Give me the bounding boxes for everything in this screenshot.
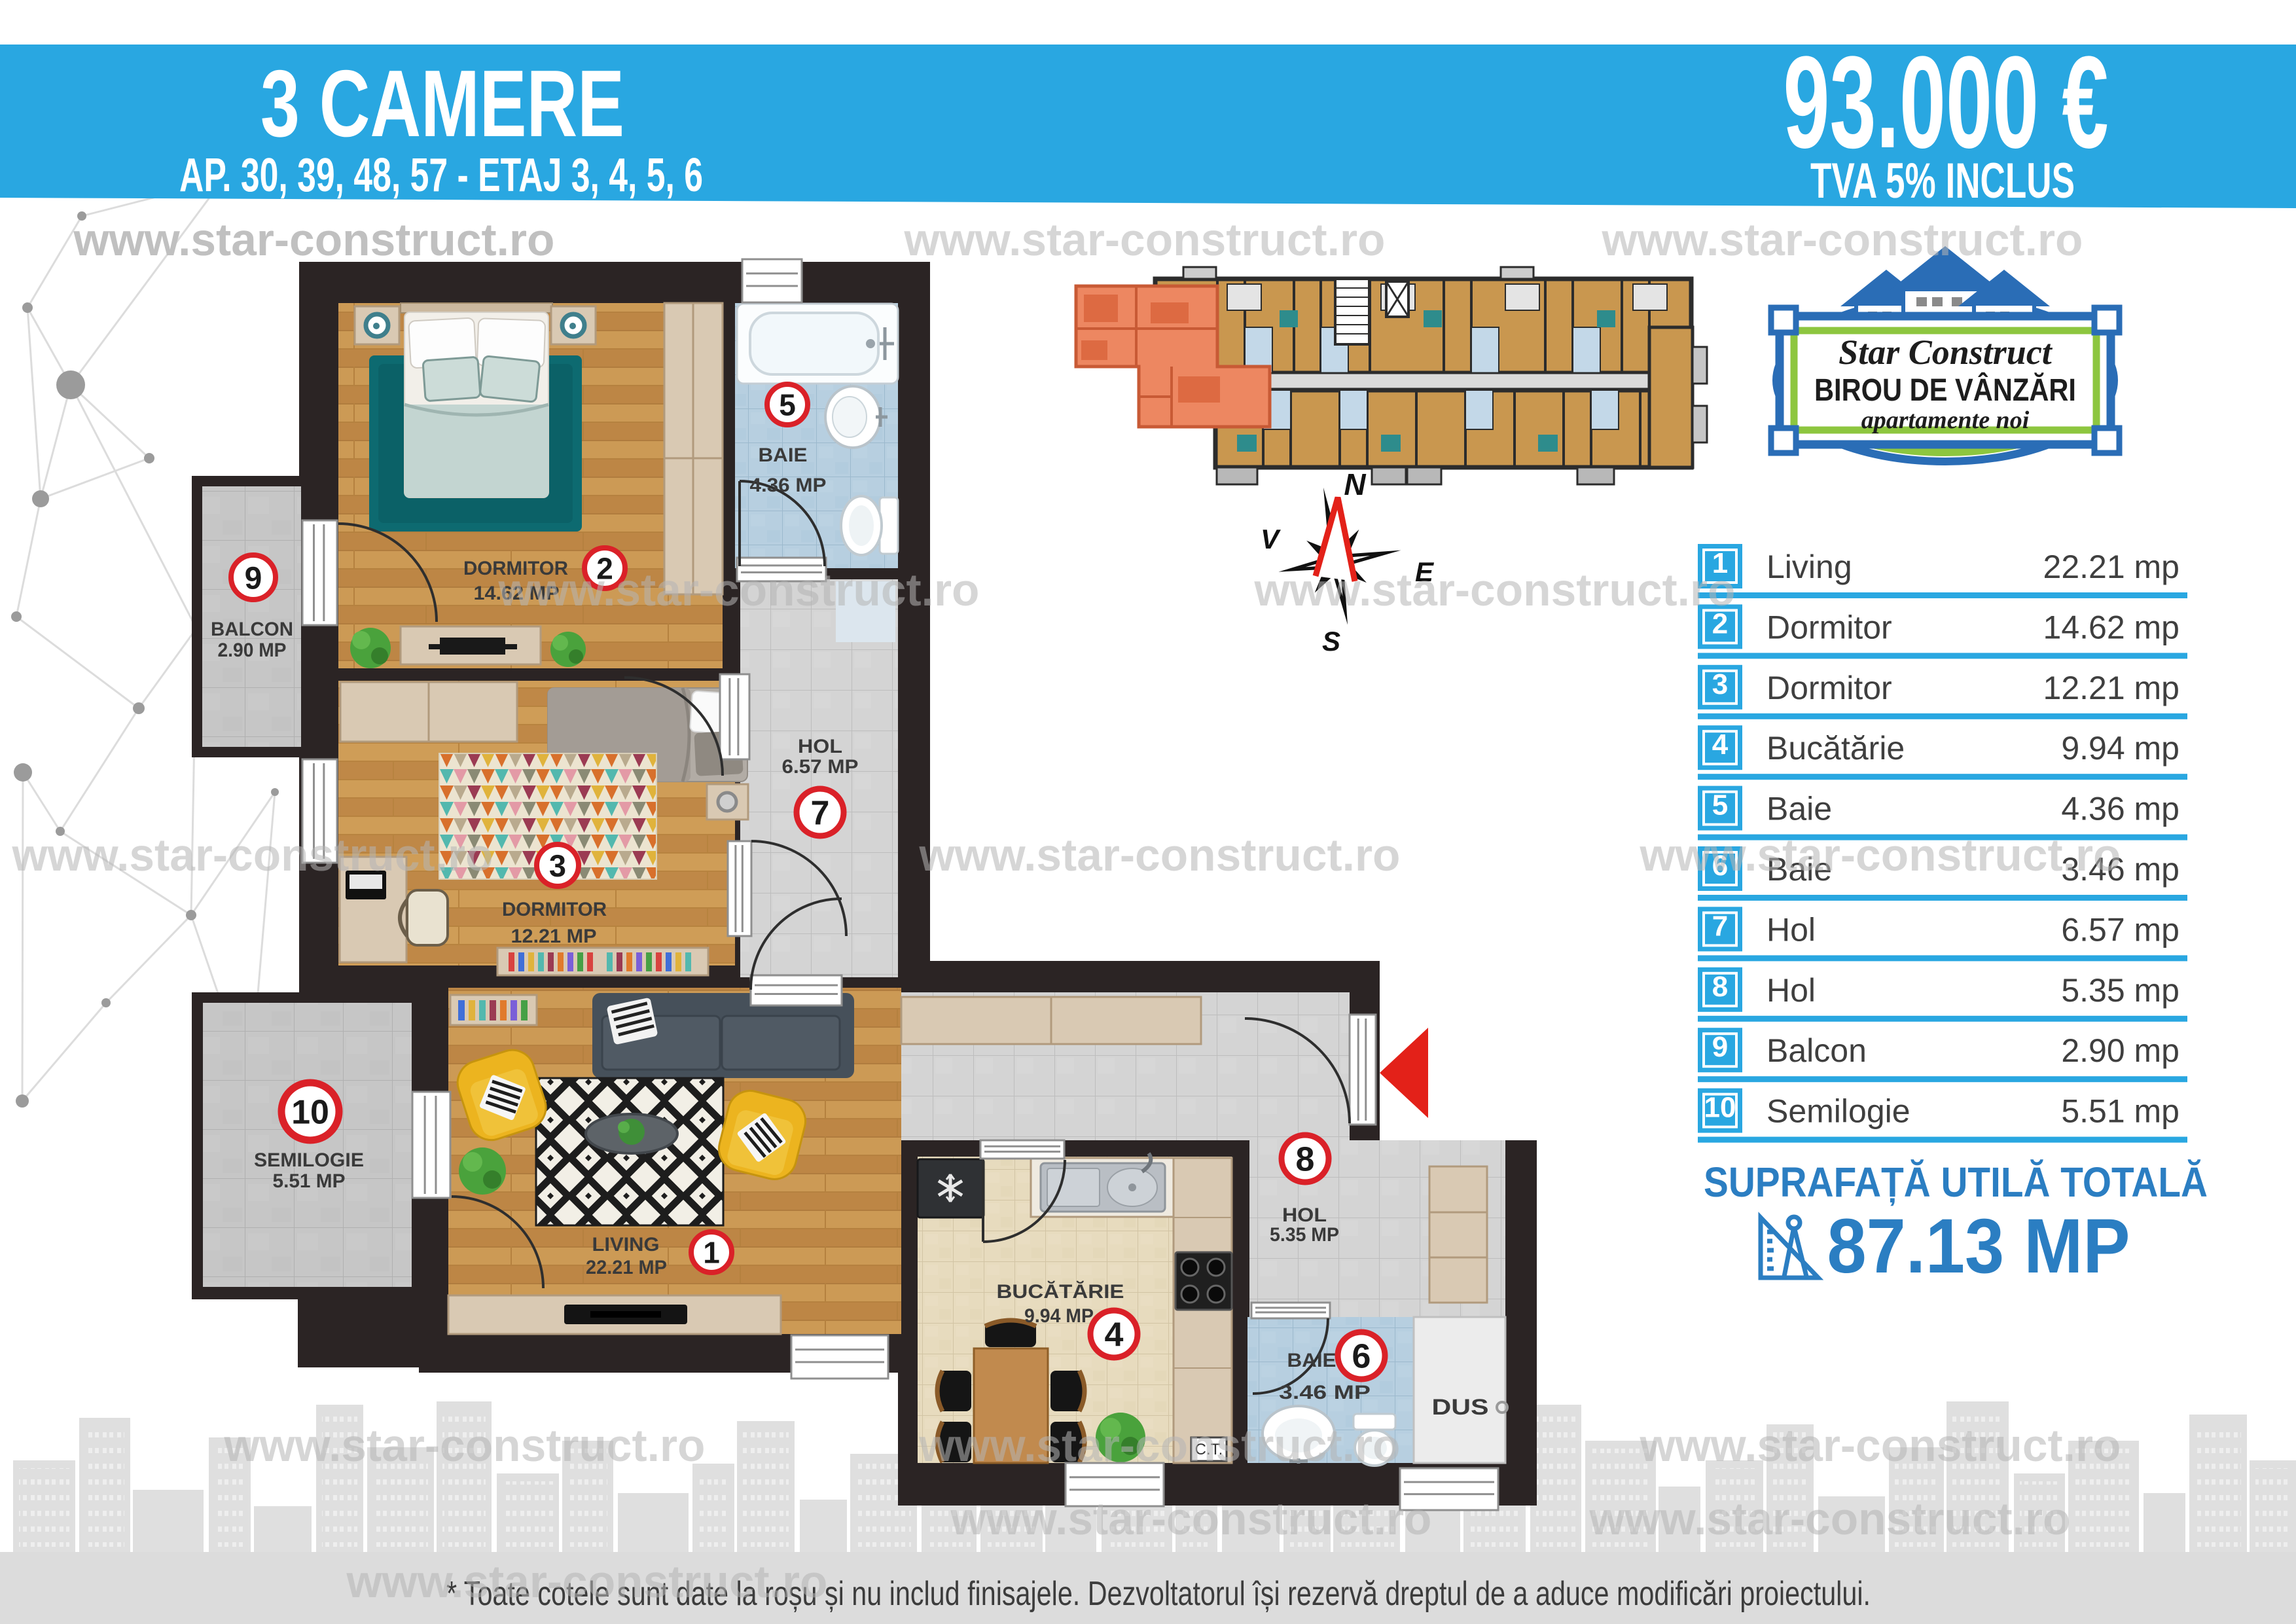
svg-text:Living: Living bbox=[1767, 549, 1852, 585]
svg-text:V: V bbox=[1261, 524, 1281, 554]
svg-text:SUPRAFAȚĂ UTILĂ TOTALĂ: SUPRAFAȚĂ UTILĂ TOTALĂ bbox=[1704, 1159, 2208, 1206]
svg-text:TVA 5% INCLUS: TVA 5% INCLUS bbox=[1810, 153, 2075, 209]
svg-text:Hol: Hol bbox=[1767, 911, 1816, 948]
svg-text:BAIE: BAIE bbox=[759, 444, 808, 466]
svg-text:S: S bbox=[1322, 626, 1340, 657]
svg-text:8: 8 bbox=[1712, 971, 1728, 1003]
svg-text:5.35 mp: 5.35 mp bbox=[2061, 972, 2179, 1009]
svg-text:Balcon: Balcon bbox=[1767, 1032, 1867, 1069]
svg-text:22.21 mp: 22.21 mp bbox=[2043, 549, 2179, 585]
svg-text:www.star-construct.ro: www.star-construct.ro bbox=[1254, 564, 1736, 615]
svg-text:Semilogie: Semilogie bbox=[1767, 1093, 1910, 1130]
svg-text:9.94 mp: 9.94 mp bbox=[2061, 730, 2179, 767]
svg-text:AP. 30, 39, 48, 57 - ETAJ 3,: AP. 30, 39, 48, 57 - ETAJ 3, 4, 5, 6 bbox=[179, 149, 703, 202]
svg-text:BALCON: BALCON bbox=[211, 619, 293, 640]
svg-text:www.star-construct.ro: www.star-construct.ro bbox=[1640, 1420, 2121, 1471]
svg-text:Star Construct: Star Construct bbox=[1839, 333, 2053, 372]
svg-text:10: 10 bbox=[291, 1094, 329, 1132]
svg-text:5.51 MP: 5.51 MP bbox=[273, 1170, 346, 1192]
svg-text:www.star-construct.ro: www.star-construct.ro bbox=[919, 829, 1401, 880]
svg-text:N: N bbox=[1344, 467, 1366, 501]
svg-text:6.57 MP: 6.57 MP bbox=[782, 756, 859, 778]
svg-text:Hol: Hol bbox=[1767, 972, 1816, 1009]
svg-text:6: 6 bbox=[1352, 1338, 1371, 1376]
svg-text:12.21 mp: 12.21 mp bbox=[2043, 670, 2179, 706]
svg-text:8: 8 bbox=[1296, 1141, 1315, 1179]
svg-text:1: 1 bbox=[703, 1236, 720, 1270]
svg-text:2.90 MP: 2.90 MP bbox=[218, 640, 287, 661]
svg-text:BUCĂTĂRIE: BUCĂTĂRIE bbox=[997, 1280, 1124, 1303]
svg-text:7: 7 bbox=[811, 795, 830, 833]
svg-text:HOL: HOL bbox=[1282, 1204, 1327, 1226]
svg-text:9: 9 bbox=[245, 561, 262, 596]
svg-text:www.star-construct.ro: www.star-construct.ro bbox=[12, 829, 493, 880]
svg-text:apartamente noi: apartamente noi bbox=[1861, 406, 2030, 434]
svg-text:22.21 MP: 22.21 MP bbox=[586, 1257, 667, 1278]
svg-text:www.star-construct.ro: www.star-construct.ro bbox=[73, 214, 555, 265]
svg-text:3: 3 bbox=[549, 848, 566, 883]
svg-text:10: 10 bbox=[1704, 1092, 1736, 1124]
svg-text:www.star-construct.ro: www.star-construct.ro bbox=[346, 1556, 828, 1607]
svg-text:BIROU DE VÂNZĂRI: BIROU DE VÂNZĂRI bbox=[1814, 372, 2076, 408]
svg-text:Dormitor: Dormitor bbox=[1767, 609, 1892, 645]
svg-text:DORMITOR: DORMITOR bbox=[502, 899, 607, 920]
svg-text:3.46 MP: 3.46 MP bbox=[1279, 1382, 1371, 1403]
svg-text:4.36 mp: 4.36 mp bbox=[2061, 791, 2179, 827]
svg-text:4: 4 bbox=[1712, 729, 1729, 761]
svg-text:3: 3 bbox=[1712, 668, 1728, 700]
svg-text:www.star-construct.ro: www.star-construct.ro bbox=[904, 214, 1386, 265]
svg-text:5: 5 bbox=[779, 388, 796, 422]
svg-text:14.62 mp: 14.62 mp bbox=[2043, 609, 2179, 645]
svg-text:www.star-construct.ro: www.star-construct.ro bbox=[1640, 829, 2121, 880]
svg-text:HOL: HOL bbox=[798, 736, 842, 757]
svg-text:Dormitor: Dormitor bbox=[1767, 670, 1892, 706]
svg-text:www.star-construct.ro: www.star-construct.ro bbox=[919, 1420, 1401, 1471]
svg-text:5: 5 bbox=[1712, 789, 1728, 821]
svg-text:Baie: Baie bbox=[1767, 791, 1832, 827]
svg-text:LIVING: LIVING bbox=[592, 1234, 660, 1255]
svg-text:3 CAMERE: 3 CAMERE bbox=[260, 50, 624, 156]
svg-text:5.35 MP: 5.35 MP bbox=[1270, 1224, 1339, 1246]
svg-text:www.star-construct.ro: www.star-construct.ro bbox=[224, 1420, 706, 1471]
svg-text:Bucătărie: Bucătărie bbox=[1767, 730, 1905, 767]
svg-text:4: 4 bbox=[1105, 1316, 1124, 1354]
svg-text:2.90 mp: 2.90 mp bbox=[2061, 1032, 2179, 1069]
svg-text:BAIE: BAIE bbox=[1287, 1350, 1336, 1371]
svg-text:DUS: DUS bbox=[1432, 1395, 1489, 1420]
svg-text:www.star-construct.ro: www.star-construct.ro bbox=[1589, 1493, 2071, 1544]
svg-text:9: 9 bbox=[1712, 1031, 1728, 1063]
svg-text:www.star-construct.ro: www.star-construct.ro bbox=[498, 564, 980, 615]
svg-text:SEMILOGIE: SEMILOGIE bbox=[254, 1149, 364, 1171]
svg-text:4.36 MP: 4.36 MP bbox=[750, 475, 827, 496]
svg-text:12.21 MP: 12.21 MP bbox=[511, 926, 597, 947]
svg-text:6.57 mp: 6.57 mp bbox=[2061, 911, 2179, 948]
svg-text:www.star-construct.ro: www.star-construct.ro bbox=[1602, 214, 2083, 265]
svg-text:www.star-construct.ro: www.star-construct.ro bbox=[950, 1493, 1432, 1544]
svg-text:87.13 MP: 87.13 MP bbox=[1827, 1203, 2130, 1290]
svg-text:7: 7 bbox=[1712, 910, 1728, 942]
svg-text:9.94 MP: 9.94 MP bbox=[1024, 1305, 1094, 1327]
svg-text:5.51 mp: 5.51 mp bbox=[2061, 1093, 2179, 1130]
